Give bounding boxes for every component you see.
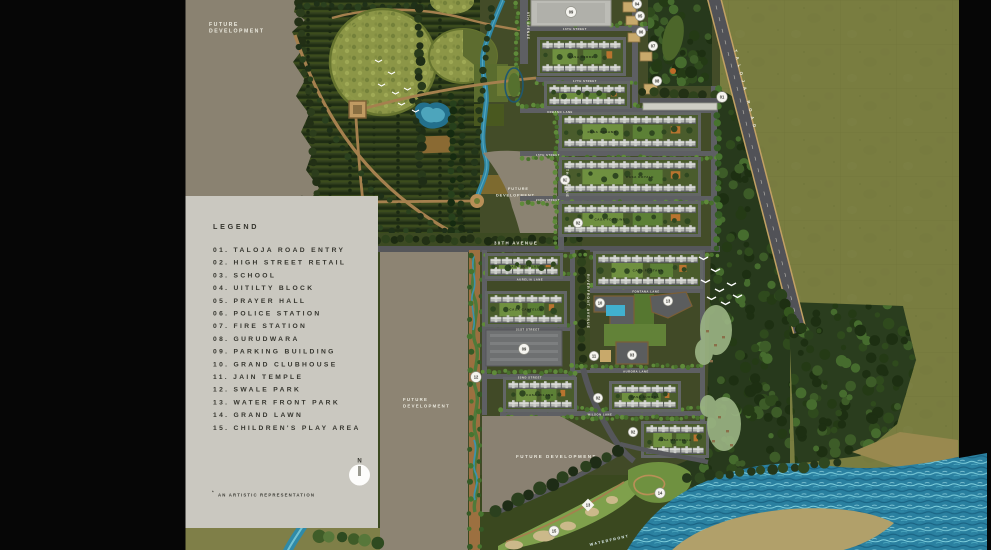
svg-text:DEVELOPMENT: DEVELOPMENT (403, 404, 450, 409)
svg-text:01. TALOJA ROAD ENTRY: 01. TALOJA ROAD ENTRY (213, 247, 345, 254)
svg-text:12: 12 (474, 375, 479, 380)
svg-text:15. CHILDREN'S PLAY AREA: 15. CHILDREN'S PLAY AREA (213, 425, 361, 432)
svg-text:10. GRAND CLUBHOUSE: 10. GRAND CLUBHOUSE (213, 361, 338, 368)
svg-text:FUTURE: FUTURE (209, 22, 239, 28)
svg-text:09: 09 (522, 347, 527, 352)
svg-text:FUTURE: FUTURE (508, 187, 529, 191)
svg-text:11. JAIN TEMPLE: 11. JAIN TEMPLE (213, 374, 303, 381)
svg-text:30TH AVENUE: 30TH AVENUE (494, 241, 538, 246)
svg-text:13: 13 (666, 299, 671, 304)
svg-text:FUTURE DEVELOPMENT: FUTURE DEVELOPMENT (516, 454, 597, 459)
svg-text:02: 02 (631, 430, 636, 435)
svg-text:CASA AURORA: CASA AURORA (631, 395, 660, 399)
svg-text:03. SCHOOL: 03. SCHOOL (213, 272, 276, 279)
svg-text:22ND STREET: 22ND STREET (518, 376, 542, 380)
svg-text:02. HIGH STREET RETAIL: 02. HIGH STREET RETAIL (213, 260, 346, 267)
svg-text:CASA CANTELLA: CASA CANTELLA (509, 308, 542, 312)
svg-text:AURELIA LANE: AURELIA LANE (517, 278, 543, 282)
svg-text:10: 10 (598, 301, 603, 306)
svg-text:12. SWALE PARK: 12. SWALE PARK (213, 387, 301, 394)
svg-text:CASA ROYALE: CASA ROYALE (626, 175, 654, 179)
svg-text:CASA FONTANA: CASA FONTANA (633, 269, 664, 273)
svg-text:14: 14 (658, 491, 663, 496)
svg-text:18TH AVENUE: 18TH AVENUE (565, 163, 569, 198)
svg-text:N: N (357, 459, 361, 465)
svg-text:04: 04 (635, 2, 640, 7)
svg-text:CASA URBANO: CASA URBANO (588, 130, 617, 134)
svg-text:01: 01 (720, 95, 725, 100)
svg-text:07: 07 (651, 44, 656, 49)
svg-text:17TH STREET: 17TH STREET (573, 79, 597, 83)
svg-text:AURORA LANE: AURORA LANE (623, 370, 649, 374)
svg-text:LEGEND: LEGEND (213, 222, 259, 231)
svg-text:13. WATER FRONT PARK: 13. WATER FRONT PARK (213, 399, 340, 406)
svg-text:WILSON LANE: WILSON LANE (588, 413, 613, 417)
svg-text:02: 02 (596, 396, 601, 401)
svg-text:05: 05 (638, 14, 643, 19)
svg-text:CASA MILANO: CASA MILANO (526, 393, 554, 397)
svg-text:CASA SURPLUS: CASA SURPLUS (509, 265, 540, 269)
svg-text:FONTANA LANE: FONTANA LANE (632, 290, 659, 294)
svg-text:09: 09 (569, 10, 574, 15)
svg-text:15TH STREET: 15TH STREET (536, 153, 560, 157)
svg-text:06: 06 (639, 30, 644, 35)
svg-text:URBANO LANE: URBANO LANE (547, 110, 573, 114)
svg-text:14. GRAND LAWN: 14. GRAND LAWN (213, 412, 303, 419)
svg-text:05. PRAYER HALL: 05. PRAYER HALL (213, 298, 306, 305)
svg-text:FUTURE: FUTURE (403, 397, 428, 402)
svg-text:CASA MARVELLA: CASA MARVELLA (658, 438, 692, 442)
svg-text:08. GURUDWARA: 08. GURUDWARA (213, 336, 300, 343)
svg-text:CASA VERDE: CASA VERDE (569, 55, 595, 59)
svg-text:CASA FORTUNE: CASA FORTUNE (595, 218, 626, 222)
svg-text:20TH STREET: 20TH STREET (536, 198, 560, 202)
svg-text:9TH AVENUE: 9TH AVENUE (526, 12, 530, 40)
svg-text:16TH STREET: 16TH STREET (563, 27, 587, 31)
svg-text:15: 15 (552, 529, 557, 534)
svg-text:02: 02 (576, 221, 581, 226)
svg-text:09. PARKING BUILDING: 09. PARKING BUILDING (213, 349, 336, 356)
svg-text:04. UITILTY BLOCK: 04. UITILTY BLOCK (213, 285, 314, 292)
svg-text:AN ARTISTIC REPRESENTATION: AN ARTISTIC REPRESENTATION (218, 493, 315, 498)
svg-text:RIVERFRONT AVENUE: RIVERFRONT AVENUE (586, 274, 590, 329)
svg-text:DEVELOPMENT: DEVELOPMENT (209, 29, 264, 35)
svg-text:08: 08 (655, 79, 660, 84)
svg-text:21ST STREET: 21ST STREET (516, 328, 540, 332)
svg-text:11: 11 (592, 354, 597, 359)
svg-text:06. POLICE STATION: 06. POLICE STATION (213, 311, 322, 318)
svg-text:03: 03 (630, 353, 635, 358)
svg-text:13: 13 (586, 503, 591, 508)
svg-text:07. FIRE STATION: 07. FIRE STATION (213, 323, 307, 330)
